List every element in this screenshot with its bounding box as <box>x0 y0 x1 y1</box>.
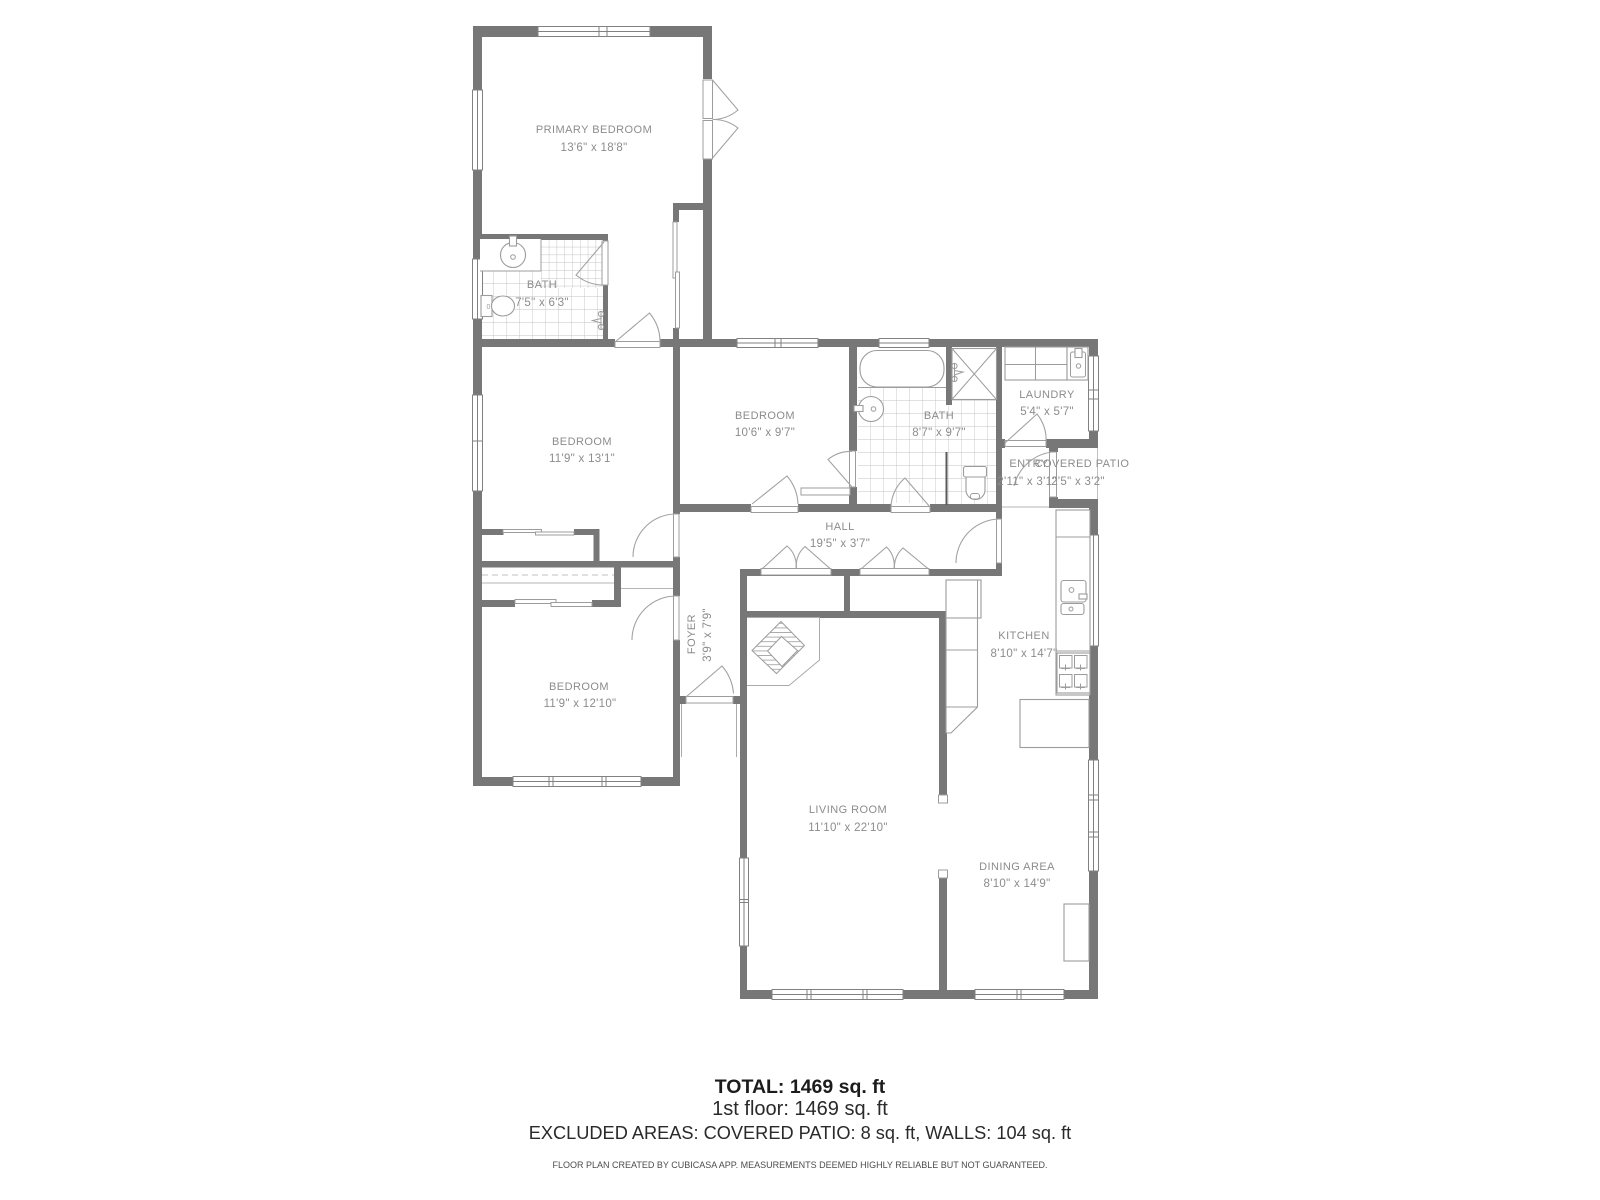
svg-text:BEDROOM: BEDROOM <box>549 681 609 693</box>
svg-text:11'10" x 22'10": 11'10" x 22'10" <box>808 822 888 834</box>
svg-text:HALL: HALL <box>825 521 854 533</box>
svg-text:8'7" x 9'7": 8'7" x 9'7" <box>912 427 966 439</box>
svg-text:1st floor: 1469 sq. ft: 1st floor: 1469 sq. ft <box>712 1098 888 1120</box>
svg-text:19'5" x 3'7": 19'5" x 3'7" <box>810 538 870 550</box>
svg-text:COVERED PATIO: COVERED PATIO <box>1035 458 1130 470</box>
svg-text:8'10" x 14'9": 8'10" x 14'9" <box>984 878 1051 890</box>
svg-text:BEDROOM: BEDROOM <box>735 410 795 422</box>
svg-text:10'6" x 9'7": 10'6" x 9'7" <box>735 427 795 439</box>
svg-text:7'5" x 6'3": 7'5" x 6'3" <box>515 297 569 309</box>
svg-text:0: 0 <box>487 304 491 311</box>
svg-text:LIVING ROOM: LIVING ROOM <box>809 804 887 816</box>
svg-text:13'6" x 18'8": 13'6" x 18'8" <box>561 142 628 154</box>
svg-text:PRIMARY BEDROOM: PRIMARY BEDROOM <box>536 124 652 136</box>
svg-text:FLOOR PLAN CREATED BY CUBICASA: FLOOR PLAN CREATED BY CUBICASA APP. MEAS… <box>553 1160 1048 1170</box>
svg-text:BEDROOM: BEDROOM <box>552 436 612 448</box>
svg-text:11'9" x 13'1": 11'9" x 13'1" <box>549 453 615 465</box>
svg-text:2'11" x 3'1": 2'11" x 3'1" <box>997 476 1056 488</box>
svg-text:BATH: BATH <box>527 279 557 291</box>
svg-text:DINING AREA: DINING AREA <box>979 861 1055 873</box>
svg-text:5'4" x 5'7": 5'4" x 5'7" <box>1020 406 1074 418</box>
svg-text:FOYER: FOYER <box>686 614 698 654</box>
svg-text:TOTAL: 1469 sq. ft: TOTAL: 1469 sq. ft <box>715 1076 886 1098</box>
svg-text:3'9" x 7'9": 3'9" x 7'9" <box>702 608 714 662</box>
svg-text:KITCHEN: KITCHEN <box>998 630 1049 642</box>
svg-text:BATH: BATH <box>924 410 954 422</box>
svg-text:LAUNDRY: LAUNDRY <box>1019 389 1075 401</box>
svg-text:EXCLUDED AREAS: COVERED PATIO:: EXCLUDED AREAS: COVERED PATIO: 8 sq. ft,… <box>529 1123 1071 1143</box>
svg-text:8'10" x 14'7": 8'10" x 14'7" <box>991 648 1058 660</box>
svg-text:11'9" x 12'10": 11'9" x 12'10" <box>544 698 617 710</box>
svg-text:2'5" x 3'2": 2'5" x 3'2" <box>1051 476 1105 488</box>
